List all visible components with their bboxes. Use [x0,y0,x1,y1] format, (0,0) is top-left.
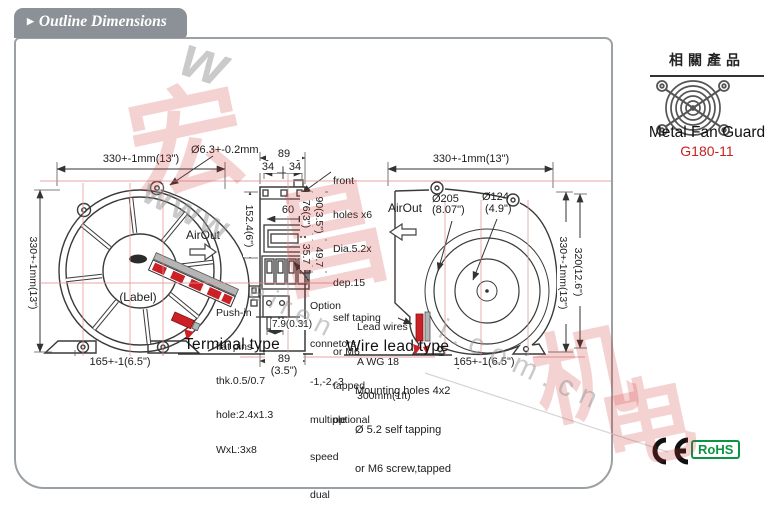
wire-lead-type-label: Wire lead type [346,338,449,356]
sv-dim-76: 76(3") [300,192,312,236]
rf-dim-height-inner: 330+-1mm(13") [557,222,569,324]
sv-dim-79: 7.9(0.31) [271,319,313,330]
hub-label: (Label) [107,290,169,304]
rf-dim-d124: Ø124 [482,191,509,203]
watermark-line [425,373,668,452]
sv-dim-497: 49.7 [313,241,325,273]
related-products-heading: 相關產品 [650,50,764,77]
rf-dim-width: 330+-1mm(13") [418,153,524,165]
datasheet-page: 330+-1mm(13") 330+-1mm(13") Ø6.3+-0.2mm … [0,0,769,506]
sv-dim-89b: 89 [265,353,303,365]
sv-dim-34l: 34 [259,161,277,173]
ce-mark-icon [645,436,689,466]
section-header-tab: ▶Outline Dimensions [14,8,187,38]
rohs-badge: RoHS [691,440,740,459]
lf-dim-height: 330+-1mm(13") [27,222,39,324]
tab-bullet-icon: ▶ [27,16,34,26]
rf-dim-d124-in: (4.9") [485,203,512,215]
related-product-model: G180-11 [640,143,769,159]
rf-dim-d205-in: (8.07") [432,204,465,216]
sv-dim-34r: 34 [286,161,304,173]
terminal-type-label: Terminal type [184,336,280,354]
sv-dim-89b-inch: (3.5") [261,365,307,377]
sv-dim-90: 90(3.5") [313,188,325,242]
sv-dim-357: 35.7 [300,238,312,270]
lf-dim-hole: Ø6.3+-0.2mm [191,144,259,156]
airout-arrow-left [390,224,416,240]
lf-dim-feet: 165+-1(6.5") [71,356,169,368]
sv-dim-depth: 152.4(6") [243,195,255,257]
rf-airout-label: AirOut [388,201,422,215]
rf-dim-height-outer: 320(12.6") [572,238,584,306]
hub-logo [129,255,147,264]
push-in-note: Push-in flat pins thk.0.5/0.7 hole:2.4x1… [216,285,273,479]
mounting-holes-note: Mounting holes 4x2 Ø 5.2 self tapping or… [355,359,451,502]
page-title: Outline Dimensions [39,13,167,30]
lf-airout-label: AirOut [186,228,220,242]
sv-dim-89: 89 [266,148,302,160]
lf-dim-width: 330+-1mm(13") [88,153,194,165]
related-product-name: Metal Fan Guard [640,124,769,142]
option-note: Option connetors -1,-2,-3 multiple speed… [310,275,356,506]
